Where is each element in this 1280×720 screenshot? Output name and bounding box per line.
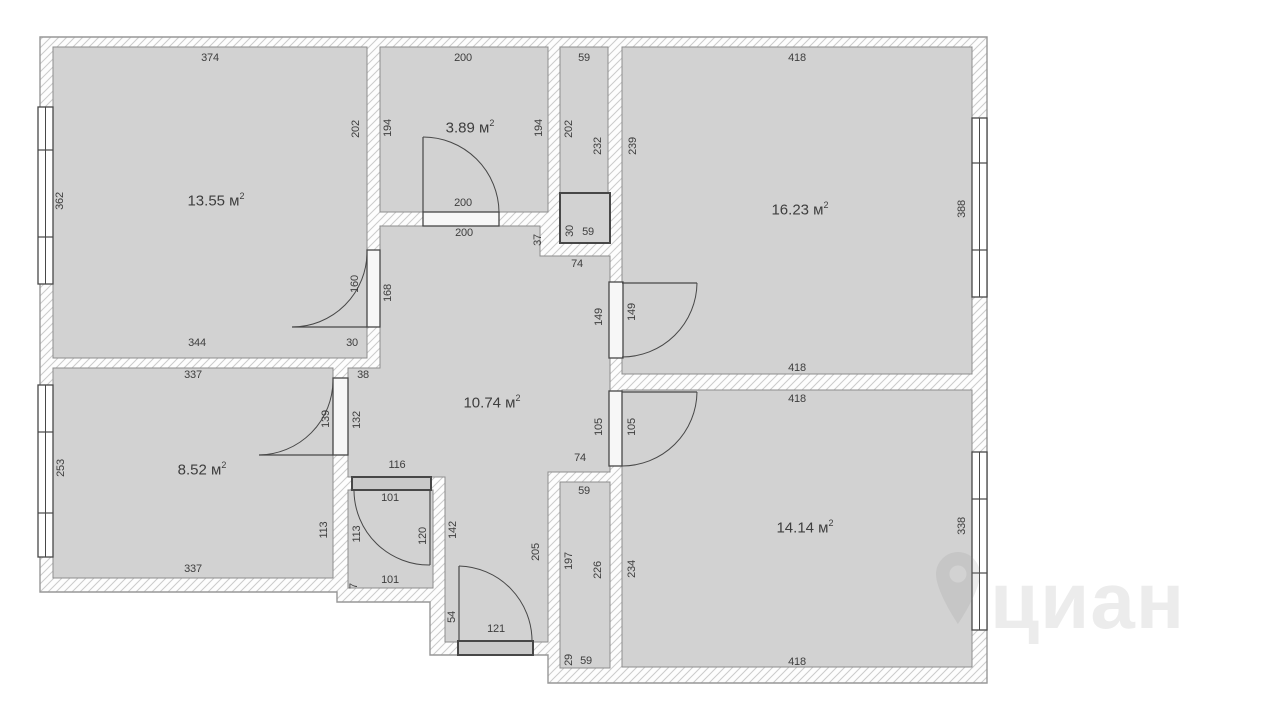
dimension-label: 101: [381, 574, 399, 586]
dimension-label: 59: [578, 52, 590, 64]
dimension-label: 362: [54, 192, 66, 210]
dimension-label: 253: [55, 459, 67, 477]
dimension-label: 149: [593, 308, 605, 326]
dimension-label: 200: [454, 52, 472, 64]
dimension-label: 105: [626, 418, 638, 436]
dimension-label: 338: [956, 517, 968, 535]
dimension-label: 54: [446, 611, 458, 623]
dimension-label: 418: [788, 52, 806, 64]
dimension-label: 120: [417, 527, 429, 545]
floor-plan-drawing: 3743622023443016016820019419420020059202…: [0, 0, 1280, 720]
room-area-label: 3.89 м2: [446, 118, 495, 137]
dimension-label: 30: [346, 337, 358, 349]
dimension-label: 59: [582, 226, 594, 238]
dimension-label: 29: [563, 654, 575, 666]
duct-top: [560, 47, 608, 193]
dimension-label: 30: [564, 225, 576, 237]
dimension-label: 113: [351, 525, 363, 542]
dimension-label: 194: [382, 119, 394, 137]
window-room-16-23: [972, 118, 987, 297]
dimension-label: 232: [592, 137, 604, 155]
dimension-label: 239: [627, 137, 639, 155]
dimension-label: 418: [788, 393, 806, 405]
room-area-label: 10.74 м2: [463, 393, 520, 412]
room-area-label: 8.52 м2: [178, 460, 227, 479]
dimension-label: 132: [351, 411, 363, 429]
dimension-label: 337: [184, 563, 202, 575]
window-room-13-55: [38, 107, 53, 284]
room-area-label: 16.23 м2: [771, 200, 828, 219]
dimension-label: 337: [184, 369, 202, 381]
dimension-label: 374: [201, 52, 219, 64]
dimension-label: 74: [571, 258, 583, 270]
dimension-label: 202: [563, 120, 575, 138]
room-area-label: 13.55 м2: [187, 191, 244, 210]
dimension-label: 38: [357, 369, 369, 381]
dimension-label: 200: [455, 227, 473, 239]
dimension-label: 160: [349, 275, 361, 293]
dimension-label: 59: [578, 485, 590, 497]
dimension-label: 202: [350, 120, 362, 138]
window-room-8-52: [38, 385, 53, 557]
dimension-label: 197: [563, 552, 575, 570]
dimension-label: 139: [320, 410, 332, 428]
dimension-label: 200: [454, 197, 472, 209]
dimension-label: 59: [580, 655, 592, 667]
dimension-label: 418: [788, 362, 806, 374]
dimension-label: 116: [389, 459, 406, 471]
dimension-label: 7: [348, 583, 360, 589]
dimension-label: 105: [593, 418, 605, 436]
floor-plan-page: 3743622023443016016820019419420020059202…: [0, 0, 1280, 720]
dimension-label: 388: [956, 200, 968, 218]
room-area-label: 14.14 м2: [776, 518, 833, 537]
window-room-14-14: [972, 452, 987, 630]
dimension-label: 37: [532, 234, 544, 246]
dimension-label: 149: [626, 303, 638, 321]
dimension-label: 344: [188, 337, 206, 349]
dimension-label: 113: [318, 521, 330, 538]
dimension-label: 142: [447, 521, 459, 539]
watermark-text: циан: [990, 556, 1185, 645]
dimension-label: 234: [626, 560, 638, 578]
dimension-label: 194: [533, 119, 545, 137]
dimension-label: 168: [382, 284, 394, 302]
dimension-label: 418: [788, 656, 806, 668]
dimension-label: 226: [592, 561, 604, 579]
dimension-label: 101: [381, 492, 399, 504]
dimension-label: 121: [487, 623, 505, 635]
dimension-label: 205: [530, 543, 542, 561]
dimension-label: 74: [574, 452, 586, 464]
